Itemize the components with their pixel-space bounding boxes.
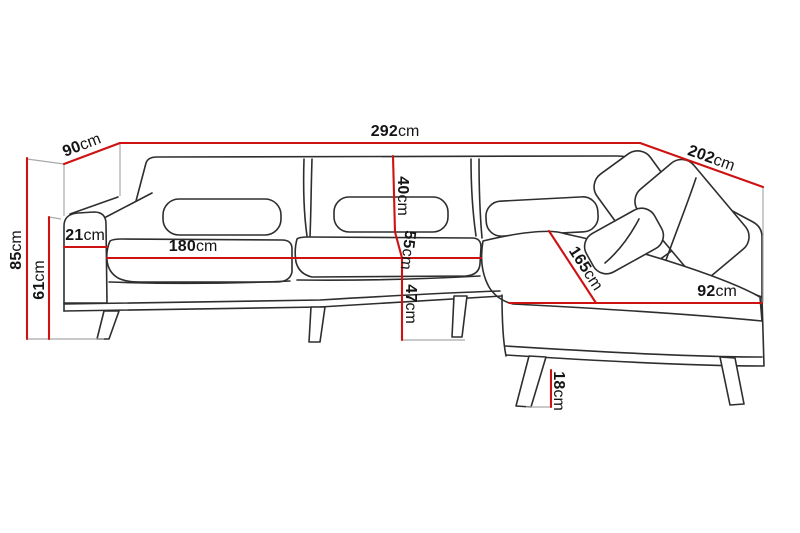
sofa-leg <box>452 296 467 337</box>
lumbar-pillow <box>334 197 448 232</box>
armrest-front <box>64 212 107 303</box>
sofa-outline <box>64 145 764 407</box>
sofa-leg <box>516 356 546 407</box>
base-rail-top <box>64 291 500 304</box>
chaise-base-rail-top <box>505 346 762 357</box>
dim-label-seat-height: 47cm <box>402 284 418 324</box>
chaise-base-left-edge <box>502 295 506 356</box>
chaise-right-edge <box>762 298 764 366</box>
sofa-dimension-diagram: 292cm 90cm 202cm 85cm 61cm 21cm 180cm 40… <box>0 0 800 533</box>
dim-label-chaise-width: 92cm <box>697 284 737 300</box>
dim-label-seat-width: 180cm <box>169 239 218 255</box>
sofa-leg <box>720 357 744 405</box>
dim-label-overall-width: 292cm <box>371 124 420 140</box>
ref-line <box>27 159 64 164</box>
dim-label-leg-height: 18cm <box>550 371 566 411</box>
dim-label-armrest-width: 21cm <box>65 228 105 244</box>
sofa-leg <box>309 307 325 342</box>
dim-label-overall-height: 85cm <box>9 230 25 270</box>
sofa-leg <box>97 311 119 339</box>
dim-label-mid-section-height: 55cm <box>397 229 418 270</box>
lumbar-pillow <box>163 199 281 235</box>
ref-line <box>49 217 61 219</box>
dim-label-armrest-height: 61cm <box>32 260 48 300</box>
dim-label-backrest-height: 40cm <box>394 176 410 216</box>
